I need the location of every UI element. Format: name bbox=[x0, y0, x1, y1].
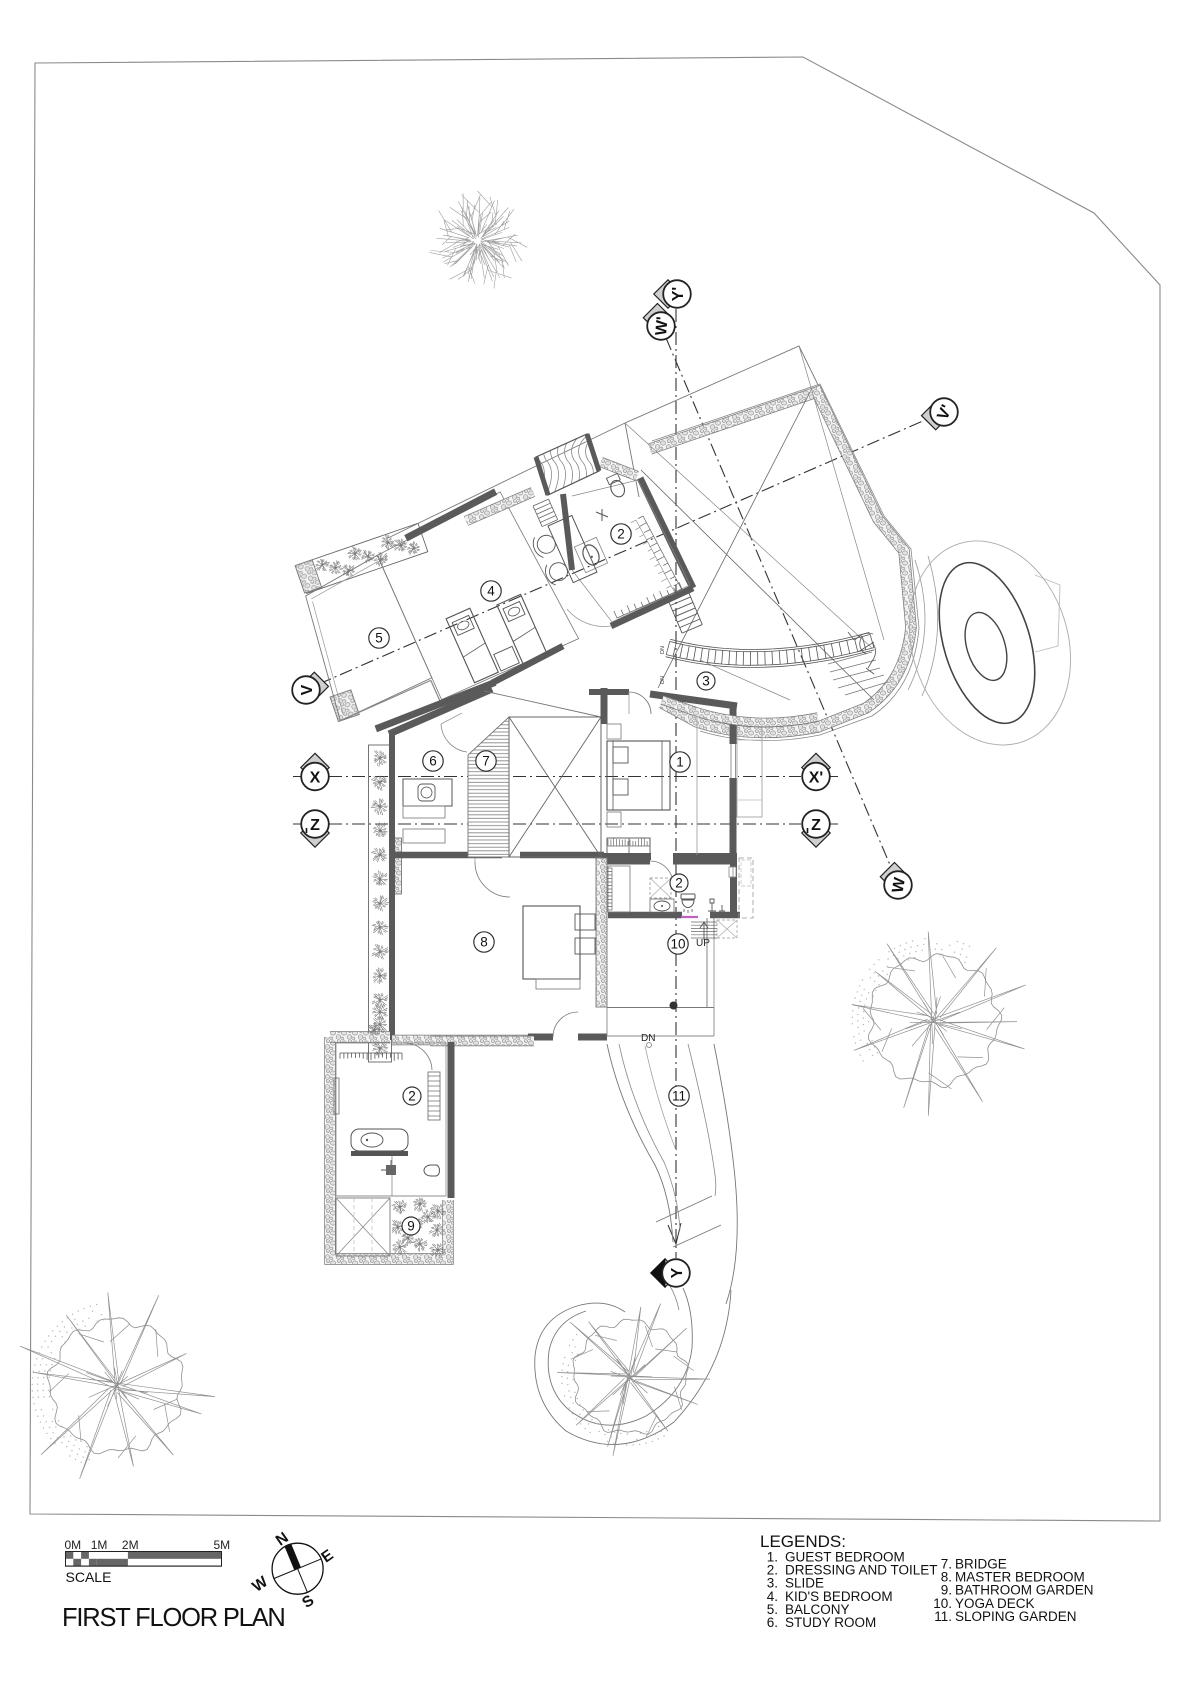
svg-text:8: 8 bbox=[480, 935, 488, 950]
svg-text:5: 5 bbox=[375, 631, 383, 646]
svg-text:4: 4 bbox=[487, 584, 495, 599]
svg-text:7: 7 bbox=[482, 754, 490, 769]
svg-text:DN: DN bbox=[660, 676, 666, 684]
svg-text:FIRST FLOOR PLAN: FIRST FLOOR PLAN bbox=[62, 1604, 285, 1632]
svg-text:UP: UP bbox=[696, 938, 710, 949]
svg-text:11: 11 bbox=[672, 1089, 686, 1104]
svg-text:Z: Z bbox=[310, 817, 320, 834]
svg-text:E: E bbox=[318, 1547, 336, 1567]
svg-text:0M: 0M bbox=[65, 1538, 82, 1552]
svg-text:2M: 2M bbox=[122, 1538, 139, 1552]
svg-text:1: 1 bbox=[676, 755, 684, 770]
svg-text:2: 2 bbox=[408, 1089, 416, 1104]
svg-text:SLOPING GARDEN: SLOPING GARDEN bbox=[955, 1609, 1077, 1624]
svg-text:SCALE: SCALE bbox=[66, 1569, 112, 1585]
svg-text:X': X' bbox=[809, 769, 823, 786]
svg-text:X: X bbox=[310, 769, 321, 786]
svg-text:STUDY ROOM: STUDY ROOM bbox=[785, 1615, 876, 1630]
svg-text:2: 2 bbox=[617, 527, 625, 542]
svg-text:3: 3 bbox=[702, 674, 710, 689]
svg-text:W: W bbox=[249, 1573, 271, 1596]
svg-text:W': W' bbox=[653, 316, 672, 336]
svg-text:S: S bbox=[299, 1592, 317, 1612]
svg-text:6.: 6. bbox=[767, 1615, 778, 1630]
svg-text:1M: 1M bbox=[91, 1538, 108, 1552]
svg-text:2: 2 bbox=[675, 876, 683, 891]
svg-text:DN: DN bbox=[660, 646, 666, 654]
svg-text:LEGENDS:: LEGENDS: bbox=[760, 1532, 846, 1551]
svg-text:Y': Y' bbox=[670, 287, 687, 301]
svg-text:6: 6 bbox=[429, 754, 437, 769]
svg-text:Z: Z bbox=[811, 817, 821, 834]
svg-text:Y: Y bbox=[669, 1267, 686, 1278]
svg-text:10: 10 bbox=[670, 937, 685, 952]
svg-text:11.: 11. bbox=[934, 1609, 952, 1624]
svg-text:5M: 5M bbox=[214, 1538, 231, 1552]
svg-text:V: V bbox=[299, 684, 316, 695]
svg-text:9: 9 bbox=[407, 1219, 415, 1234]
